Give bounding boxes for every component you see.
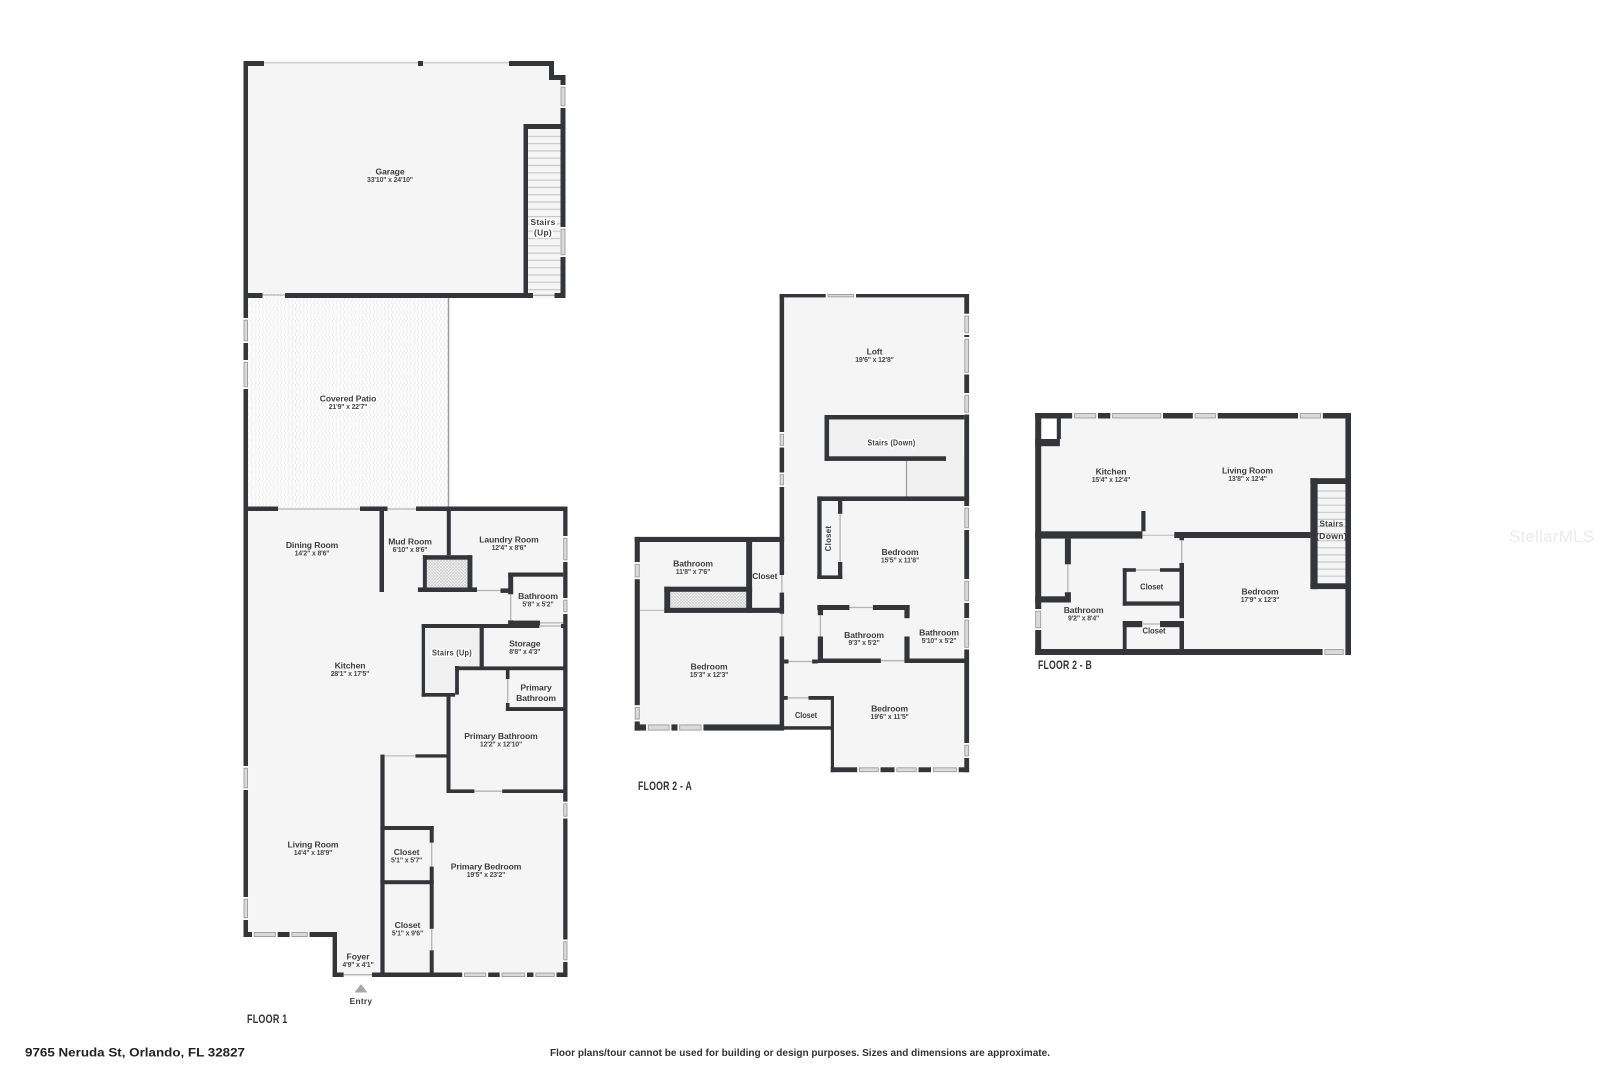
- svg-text:Bedroom: Bedroom: [690, 662, 727, 672]
- svg-text:Foyer: Foyer: [347, 952, 371, 962]
- svg-text:14'2" x 8'6": 14'2" x 8'6": [295, 550, 330, 557]
- svg-text:Bathroom: Bathroom: [516, 693, 556, 703]
- svg-text:Stairs: Stairs: [530, 217, 555, 227]
- svg-text:Bedroom: Bedroom: [881, 547, 918, 557]
- svg-text:28'1" x 17'5": 28'1" x 17'5": [331, 671, 370, 678]
- svg-text:9'3" x 5'2": 9'3" x 5'2": [848, 640, 879, 647]
- svg-text:Closet: Closet: [795, 711, 817, 720]
- svg-text:6'10" x 8'6": 6'10" x 8'6": [393, 547, 428, 554]
- svg-text:19'6" x 12'8": 19'6" x 12'8": [855, 357, 894, 364]
- svg-text:Primary Bathroom: Primary Bathroom: [464, 731, 538, 741]
- svg-text:12'2" x 12'10": 12'2" x 12'10": [480, 741, 522, 748]
- svg-text:9765 Neruda St, Orlando, FL 32: 9765 Neruda St, Orlando, FL 32827: [25, 1046, 245, 1060]
- svg-text:33'10" x 24'10": 33'10" x 24'10": [367, 177, 413, 184]
- svg-text:Garage: Garage: [375, 167, 404, 177]
- svg-text:Primary: Primary: [520, 683, 552, 693]
- svg-text:Dining Room: Dining Room: [286, 540, 339, 550]
- svg-text:Floor plans/tour cannot be use: Floor plans/tour cannot be used for buil…: [550, 1048, 1050, 1059]
- svg-text:Stairs (Down): Stairs (Down): [868, 438, 916, 448]
- svg-text:Mud Room: Mud Room: [388, 537, 432, 547]
- svg-text:Living Room: Living Room: [288, 840, 339, 850]
- svg-text:15'3" x 12'3": 15'3" x 12'3": [690, 672, 729, 679]
- svg-text:Bathroom: Bathroom: [919, 628, 959, 638]
- svg-text:Storage: Storage: [509, 639, 541, 649]
- svg-text:Closet: Closet: [1143, 627, 1166, 636]
- svg-text:5'1" x 9'6": 5'1" x 9'6": [392, 930, 423, 937]
- svg-text:5'10" x 5'2": 5'10" x 5'2": [922, 638, 957, 645]
- svg-text:13'8" x 12'4": 13'8" x 12'4": [1228, 476, 1267, 483]
- svg-text:17'9" x 12'3": 17'9" x 12'3": [1241, 597, 1280, 604]
- svg-text:5'1" x 5'7": 5'1" x 5'7": [391, 857, 422, 864]
- svg-text:FLOOR 2 - A: FLOOR 2 - A: [638, 781, 692, 793]
- svg-text:14'4" x 18'9": 14'4" x 18'9": [294, 850, 333, 857]
- svg-text:19'5" x 23'2": 19'5" x 23'2": [467, 872, 506, 879]
- svg-text:Bathroom: Bathroom: [1064, 605, 1104, 615]
- svg-text:Loft: Loft: [867, 347, 883, 357]
- svg-text:Closet: Closet: [1140, 583, 1163, 592]
- svg-text:Closet: Closet: [394, 847, 420, 857]
- svg-text:9'2" x 8'4": 9'2" x 8'4": [1068, 615, 1099, 622]
- svg-text:Bathroom: Bathroom: [844, 630, 884, 640]
- svg-text:Closet: Closet: [824, 526, 833, 552]
- svg-text:Covered Patio: Covered Patio: [320, 394, 377, 404]
- svg-text:Entry: Entry: [350, 996, 373, 1006]
- svg-text:Stairs (Up): Stairs (Up): [432, 648, 472, 658]
- svg-text:Closet: Closet: [395, 920, 421, 930]
- svg-text:19'6" x 11'5": 19'6" x 11'5": [871, 714, 909, 721]
- svg-text:StellarMLS: StellarMLS: [1509, 527, 1594, 546]
- svg-text:15'5" x 11'8": 15'5" x 11'8": [881, 557, 919, 564]
- svg-text:Living Room: Living Room: [1222, 466, 1273, 476]
- svg-text:FLOOR 1: FLOOR 1: [247, 1014, 288, 1026]
- svg-text:Laundry Room: Laundry Room: [479, 535, 539, 545]
- svg-text:Stairs: Stairs: [1320, 519, 1344, 529]
- svg-text:8'8" x 4'3": 8'8" x 4'3": [509, 649, 540, 656]
- svg-text:Bathroom: Bathroom: [518, 591, 558, 601]
- svg-text:Kitchen: Kitchen: [335, 661, 366, 671]
- svg-text:12'4" x 8'6": 12'4" x 8'6": [492, 545, 527, 552]
- svg-text:Kitchen: Kitchen: [1096, 467, 1127, 477]
- svg-text:FLOOR 2 - B: FLOOR 2 - B: [1038, 660, 1092, 672]
- svg-text:5'8" x 5'2": 5'8" x 5'2": [522, 601, 553, 608]
- svg-text:Closet: Closet: [752, 572, 777, 581]
- svg-text:21'9" x 22'7": 21'9" x 22'7": [329, 404, 368, 411]
- svg-text:Primary Bedroom: Primary Bedroom: [451, 862, 522, 872]
- svg-text:4'9" x 4'1": 4'9" x 4'1": [342, 962, 373, 969]
- svg-text:Bathroom: Bathroom: [673, 559, 713, 569]
- svg-text:15'4" x 12'4": 15'4" x 12'4": [1092, 477, 1131, 484]
- svg-text:Bedroom: Bedroom: [1241, 587, 1278, 597]
- svg-text:(Up): (Up): [534, 228, 552, 238]
- svg-text:(Down): (Down): [1316, 531, 1347, 541]
- svg-text:Bedroom: Bedroom: [871, 704, 908, 714]
- svg-text:11'8" x 7'6": 11'8" x 7'6": [676, 569, 710, 576]
